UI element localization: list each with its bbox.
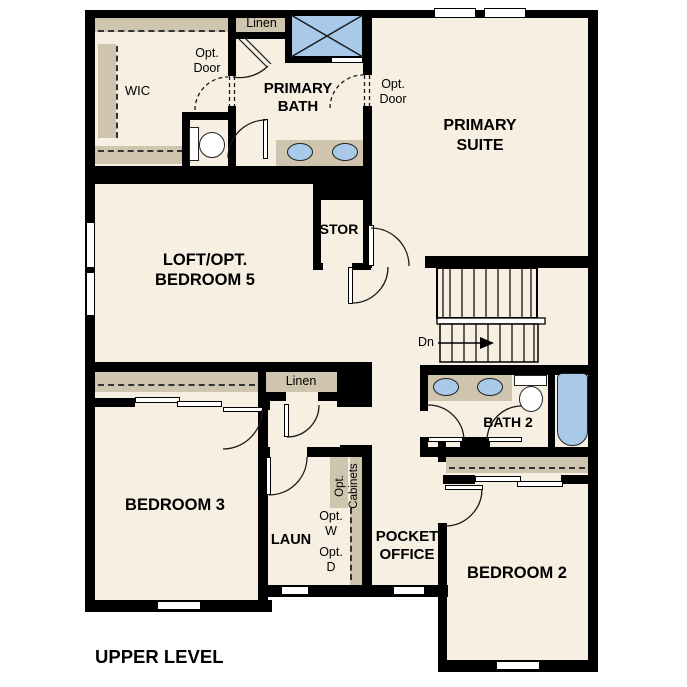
door-leaf-toilet-nook xyxy=(263,119,268,159)
wall-linen-hall-bottom-right xyxy=(318,392,340,401)
bath2-toilet-tank-icon xyxy=(514,375,547,386)
bedroom2-closet-dash xyxy=(449,467,585,469)
wic-shelf-top-dash xyxy=(98,30,225,32)
primary-toilet-bowl-icon xyxy=(199,132,225,158)
door-leaf-laundry xyxy=(266,457,271,495)
wall-toilet-nook-top xyxy=(182,112,236,120)
wall-linen-top-bottom xyxy=(230,32,290,39)
bedroom2-closet-shelf xyxy=(446,457,588,473)
bathtub-icon xyxy=(557,373,588,446)
wall-bath2-tub-divider xyxy=(548,372,555,448)
bath2-sink-2-icon xyxy=(477,378,503,396)
laundry-label: LAUN xyxy=(262,532,320,550)
bedroom2-closet-slider-b xyxy=(517,481,563,487)
wall-laundry-top-left xyxy=(258,447,270,457)
wall-bedroom2-left-stub xyxy=(438,440,446,462)
shower-icon xyxy=(290,14,364,58)
window-loft-1 xyxy=(86,222,95,268)
opt-cabinets-label: Opt. Cabinets xyxy=(318,457,376,515)
wall-bedroom3-right xyxy=(258,401,268,600)
pocket-office-label: POCKET OFFICE xyxy=(366,528,448,565)
wall-bedroom2-closet-stub-right xyxy=(561,475,588,484)
wall-bath2-bottom xyxy=(420,447,595,457)
wall-suite-left-upper xyxy=(363,10,372,75)
primary-toilet-tank-icon xyxy=(189,127,199,161)
window-laundry xyxy=(281,586,309,595)
bedroom3-closet-dash xyxy=(98,384,255,386)
primary-sink-2-icon xyxy=(332,143,358,161)
wall-right xyxy=(588,10,598,672)
window-suite-1 xyxy=(434,8,476,18)
level-title: UPPER LEVEL xyxy=(95,646,315,669)
wall-suite-bottom xyxy=(425,256,590,268)
window-bedroom2 xyxy=(496,661,540,670)
bedroom3-label: BEDROOM 3 xyxy=(108,495,242,515)
wic-shelf-bottom-dash xyxy=(98,150,183,152)
opt-door-wic-label: Opt. Door xyxy=(186,46,228,77)
stairs-dn-label: Dn xyxy=(416,335,436,350)
floor-plan-canvas: WIC Linen PRIMARY BATH Opt. Door Opt. Do… xyxy=(0,0,687,687)
linen-hall-label: Linen xyxy=(265,374,337,389)
window-bedroom3 xyxy=(157,601,201,610)
wall-block-linen-hall xyxy=(337,362,372,407)
primary-suite-label: PRIMARY SUITE xyxy=(418,116,542,155)
window-loft-2 xyxy=(86,272,95,316)
door-leaf-bath2-left xyxy=(428,437,463,442)
door-leaf-stor xyxy=(348,267,353,304)
bedroom3-closet-slider-a xyxy=(135,397,180,403)
primary-sink-1-icon xyxy=(287,143,313,161)
laundry-strip-dash xyxy=(350,508,352,580)
floor-bedroom3 xyxy=(90,455,268,610)
door-leaf-bath2-right xyxy=(488,437,522,442)
wall-bedroom2-closet-stub-left xyxy=(443,475,475,484)
primary-bath-label: PRIMARY BATH xyxy=(252,80,344,117)
bath2-label: BATH 2 xyxy=(477,414,539,431)
bedroom3-closet-shelf xyxy=(95,372,258,392)
bedroom3-closet-slider-b xyxy=(177,401,222,407)
bath2-toilet-bowl-icon xyxy=(519,386,543,412)
linen-top-label: Linen xyxy=(236,16,287,31)
door-leaf-linen-hall xyxy=(284,404,289,437)
stor-label: STOR xyxy=(316,221,362,238)
opt-door-suite-label: Opt. Door xyxy=(372,77,414,108)
door-leaf-suite xyxy=(368,225,374,266)
bedroom2-label: BEDROOM 2 xyxy=(452,563,582,583)
wall-bedroom3-closet-stub xyxy=(95,398,135,407)
wic-label: WIC xyxy=(110,83,165,99)
door-leaf-bedroom3 xyxy=(223,407,263,412)
door-leaf-bedroom2 xyxy=(445,485,483,490)
wic-shelf-bottom xyxy=(95,146,183,164)
bath2-sink-1-icon xyxy=(433,378,459,396)
window-pocket-office xyxy=(393,586,425,595)
opt-dryer-label: Opt. D xyxy=(313,545,349,576)
loft-label: LOFT/OPT. BEDROOM 5 xyxy=(123,250,287,290)
window-suite-2 xyxy=(484,8,526,18)
wall-stor-top-chunk xyxy=(313,166,371,200)
wall-loft-closet xyxy=(85,362,353,372)
bedroom2-closet-slider-a xyxy=(475,476,521,482)
wall-stor-stub-left xyxy=(313,263,323,270)
wall-bath2-left-upper xyxy=(420,365,428,411)
wall-wic-right-upper xyxy=(228,10,236,76)
